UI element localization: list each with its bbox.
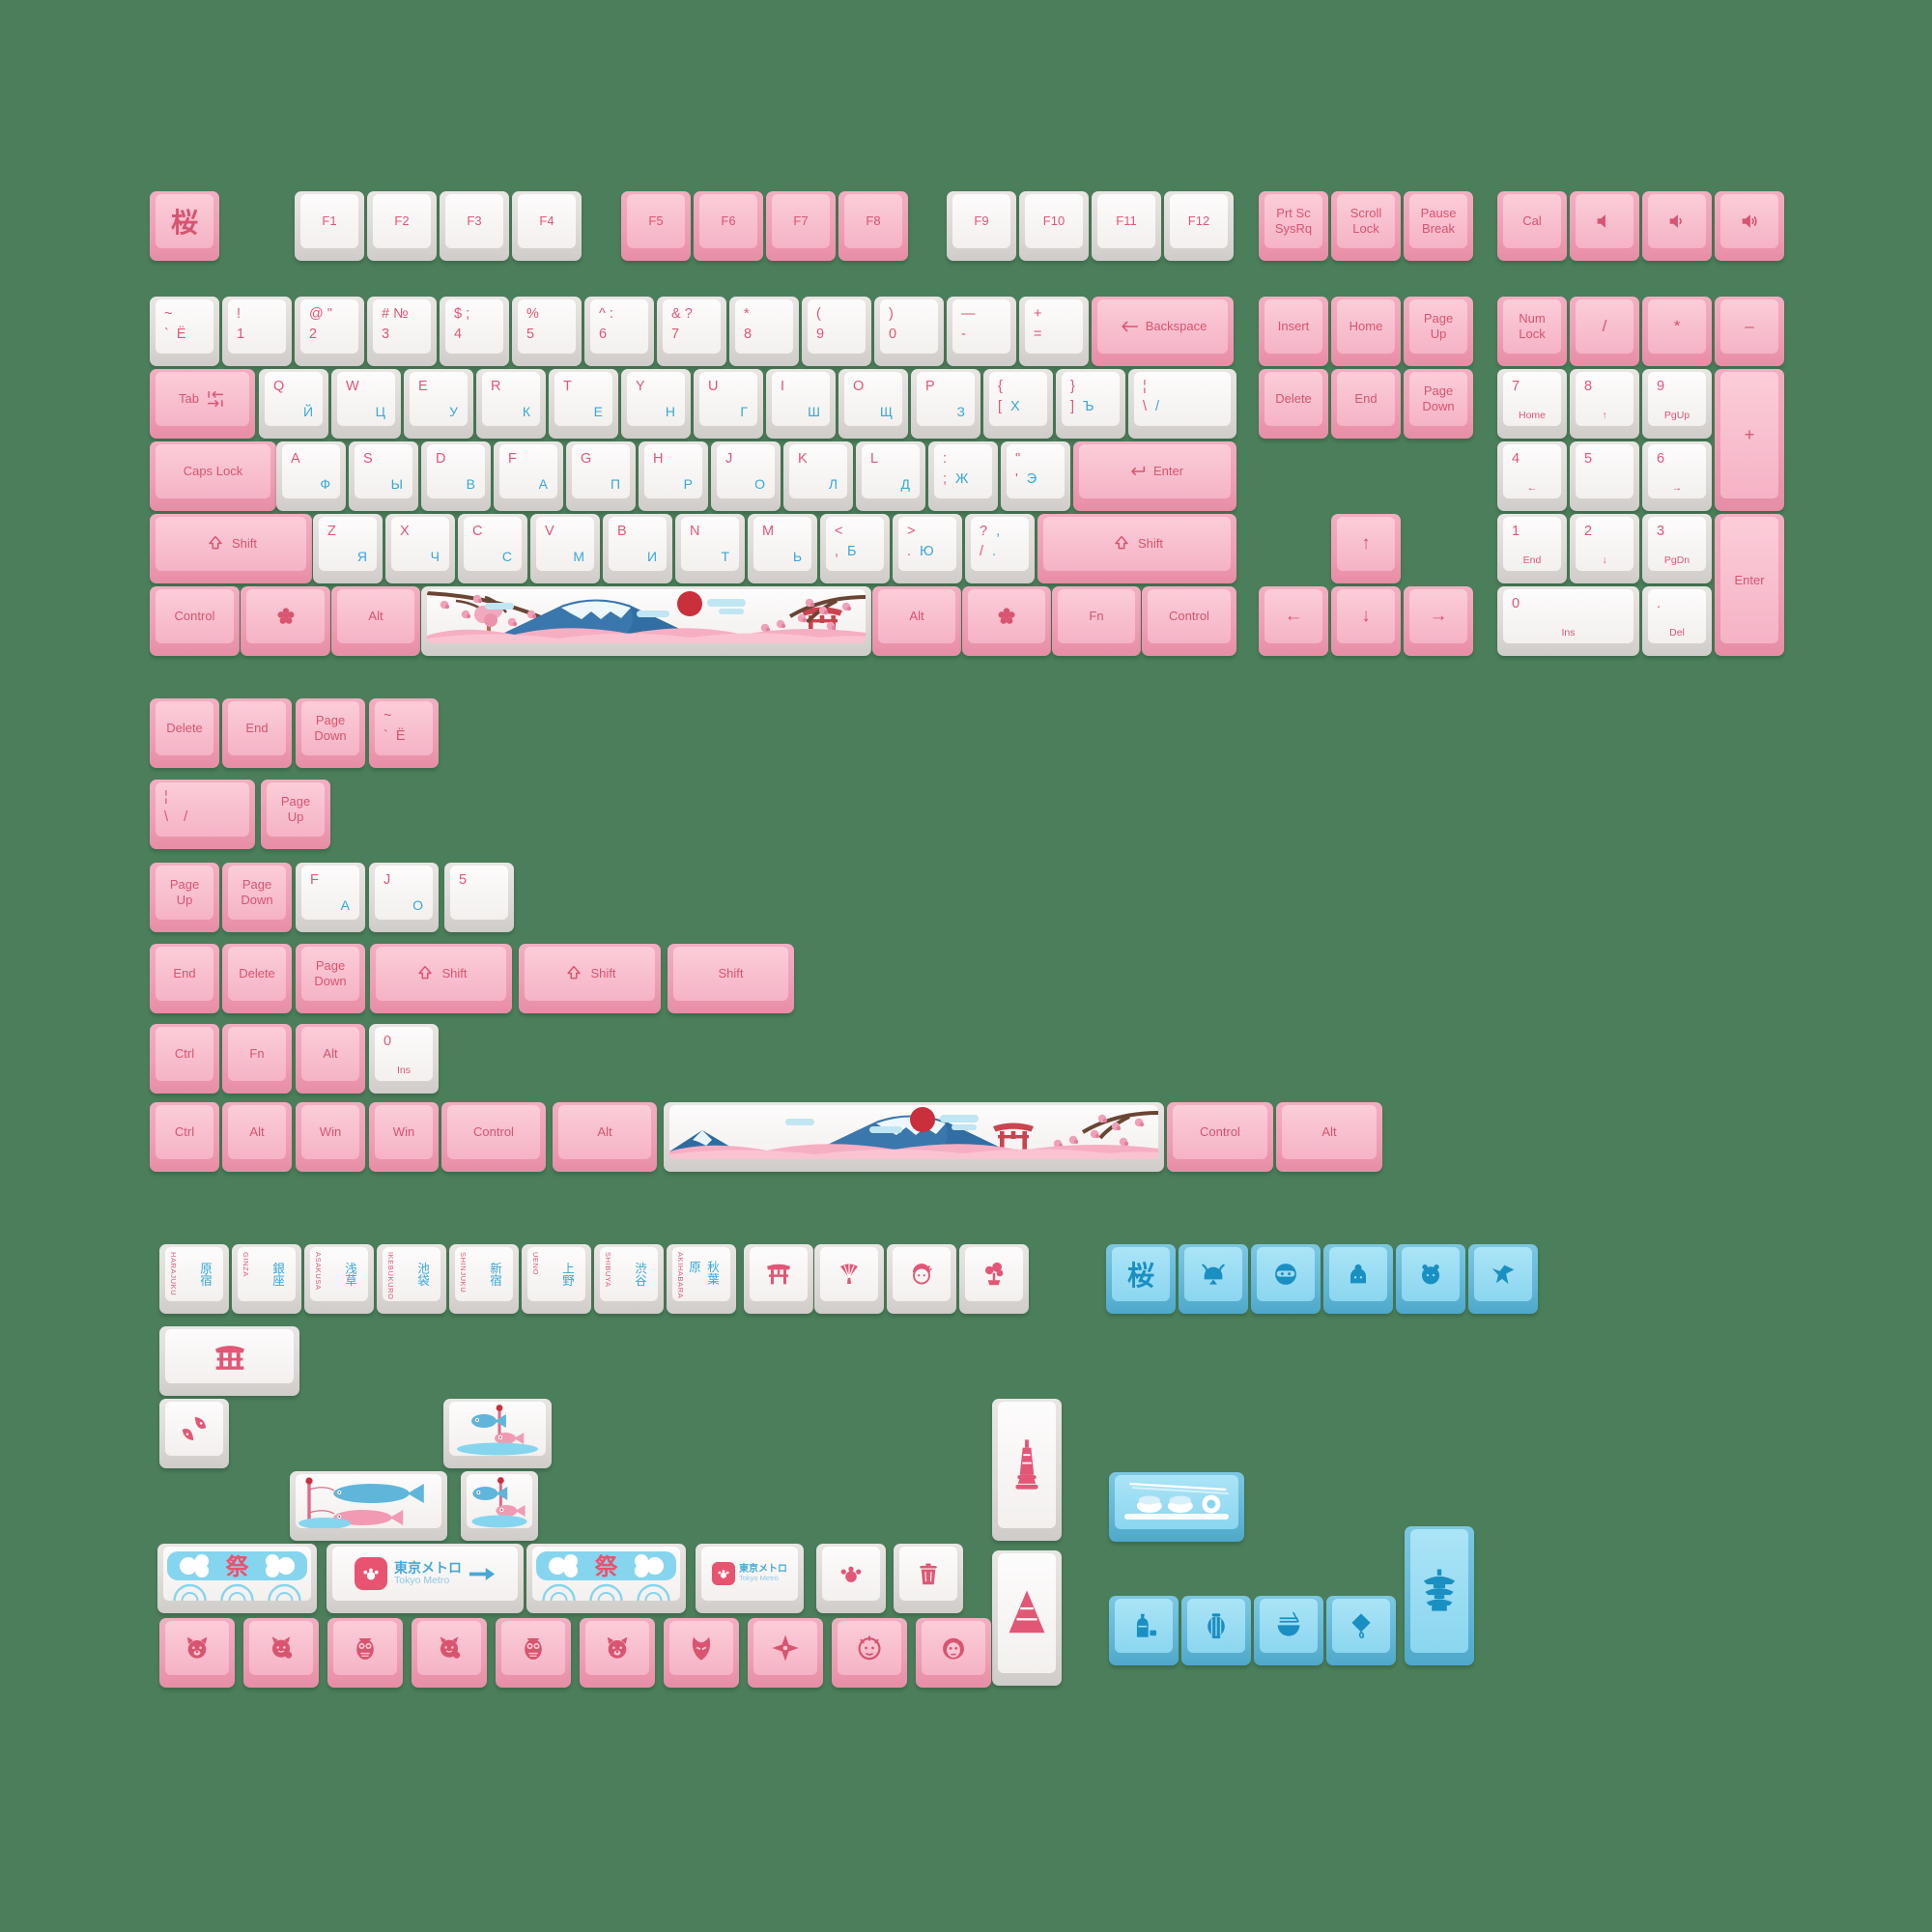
key-kite bbox=[1326, 1596, 1396, 1665]
keycap-face bbox=[1257, 1247, 1315, 1301]
key-tokyo-metro-1: 東京メトロTokyo Metro bbox=[327, 1544, 524, 1613]
key-u: UГ bbox=[694, 369, 763, 439]
keycap-face: & ?7 bbox=[663, 299, 721, 354]
key-f12: F12 bbox=[1164, 191, 1234, 261]
key-control: Control bbox=[1167, 1102, 1273, 1172]
key-quote: "'Э bbox=[1001, 441, 1070, 511]
keycap-face: OЩ bbox=[844, 372, 902, 426]
keycap-face: GП bbox=[572, 444, 630, 498]
shrine-gate-icon bbox=[211, 1337, 249, 1376]
key-maneki-neko-1 bbox=[243, 1618, 319, 1688]
backspace-icon bbox=[1119, 316, 1140, 337]
keycap-face bbox=[449, 1402, 546, 1456]
key-kokeshi-girl bbox=[887, 1244, 956, 1314]
keycap-face: Prt Sc SysRq bbox=[1264, 194, 1322, 248]
keycap-face bbox=[922, 1621, 985, 1675]
keycap-face: .Del bbox=[1648, 589, 1706, 643]
key-daruma bbox=[916, 1618, 991, 1688]
keycap-face: 8↑ bbox=[1576, 372, 1634, 426]
keycap-face bbox=[838, 1621, 901, 1675]
key-alt: Alt bbox=[222, 1102, 292, 1172]
key-f2: F2 bbox=[367, 191, 437, 261]
key-0: 0Ins bbox=[1497, 586, 1639, 656]
keycap-face: >.Ю bbox=[898, 517, 956, 571]
key-x: XЧ bbox=[385, 514, 455, 583]
key-r: RК bbox=[476, 369, 546, 439]
keycap-face: 祭 bbox=[532, 1547, 680, 1601]
keycap-face: JО bbox=[375, 866, 433, 920]
key-shift-right: Shift bbox=[1037, 514, 1236, 583]
key-page-up: Page Up bbox=[1404, 297, 1473, 366]
keycap-face bbox=[1187, 1599, 1245, 1653]
keycap-face bbox=[467, 1474, 532, 1528]
keycap-face: Shift bbox=[1043, 517, 1231, 571]
keycap-face: Page Down bbox=[228, 866, 286, 920]
keycap-face bbox=[1720, 194, 1778, 248]
key-kokeshi-doll bbox=[1396, 1244, 1465, 1314]
key-ikebukuro: IKEBUKURO池袋 bbox=[377, 1244, 446, 1314]
keycap-face: DВ bbox=[427, 444, 485, 498]
key-key: )0 bbox=[874, 297, 944, 366]
key-alt: Alt bbox=[872, 586, 961, 656]
key-numpad-subtract: – bbox=[1715, 297, 1784, 366]
keycap-face: 6→ bbox=[1648, 444, 1706, 498]
key-shift: Shift bbox=[370, 944, 512, 1013]
shift-right-icon bbox=[1111, 533, 1132, 554]
key-control: Control bbox=[150, 586, 240, 656]
keycap-face: BИ bbox=[609, 517, 667, 571]
svg-text:祭: 祭 bbox=[595, 1554, 619, 1580]
keycap-face: Ctrl bbox=[156, 1105, 213, 1159]
key-spacebar bbox=[421, 586, 871, 656]
keycap-face: Page Up bbox=[156, 866, 213, 920]
key-semicolon: :;Ж bbox=[928, 441, 998, 511]
keycap-face: ^ :6 bbox=[590, 299, 648, 354]
keycap-face: Alt bbox=[301, 1027, 359, 1081]
key-backslash-extra: ¦\ / bbox=[150, 780, 255, 849]
keycap-face: )0 bbox=[880, 299, 938, 354]
keycap-face: VМ bbox=[536, 517, 594, 571]
key-ginza: GINZA銀座 bbox=[232, 1244, 301, 1314]
key-owl-1 bbox=[327, 1618, 403, 1688]
key-o: OЩ bbox=[838, 369, 908, 439]
key-numpad-divide: / bbox=[1570, 297, 1639, 366]
key-key: %5 bbox=[512, 297, 582, 366]
key-f9: F9 bbox=[947, 191, 1016, 261]
keycap-face: F11 bbox=[1097, 194, 1155, 248]
key-w: WЦ bbox=[331, 369, 401, 439]
key-num-lock: Num Lock bbox=[1497, 297, 1567, 366]
keycap-face: }]Ъ bbox=[1062, 372, 1120, 426]
keycap-face: 5 bbox=[450, 866, 508, 920]
keycap-face bbox=[669, 1105, 1158, 1159]
pagoda-icon bbox=[1414, 1566, 1464, 1616]
key-delete: Delete bbox=[222, 944, 292, 1013]
keycap-face: F9 bbox=[952, 194, 1010, 248]
key-arrow-left: ← bbox=[1259, 586, 1328, 656]
key-koinobori-banner bbox=[290, 1471, 447, 1541]
key-k: KЛ bbox=[783, 441, 853, 511]
keycap-face: 2↓ bbox=[1576, 517, 1634, 571]
keycap-face: IKEBUKURO池袋 bbox=[383, 1247, 440, 1301]
keycap-face: * bbox=[1648, 299, 1706, 354]
key-page-down: Page Down bbox=[1404, 369, 1473, 439]
keycap-face: End bbox=[156, 947, 213, 1001]
maneki-neko-1-icon bbox=[266, 1633, 297, 1663]
key-g: GП bbox=[566, 441, 636, 511]
keycap-face: TЕ bbox=[554, 372, 612, 426]
keycap-face: —- bbox=[952, 299, 1010, 354]
volume-up-icon bbox=[1739, 211, 1760, 232]
keycap-face: Home bbox=[1337, 299, 1395, 354]
keycap-face: :;Ж bbox=[934, 444, 992, 498]
shf-icon bbox=[563, 963, 584, 984]
keycap-face: F8 bbox=[844, 194, 902, 248]
geisha-icon bbox=[1343, 1259, 1374, 1290]
key-sakura-kanji: 桜 bbox=[1106, 1244, 1176, 1314]
key-ueno: UENO上野 bbox=[522, 1244, 591, 1314]
keycap-face bbox=[427, 589, 866, 643]
kokeshi-doll-icon bbox=[1415, 1259, 1446, 1290]
keycap-face bbox=[333, 1621, 397, 1675]
keycap-face: FА bbox=[301, 866, 359, 920]
keycap-face: Alt bbox=[878, 589, 955, 643]
keycap-face: 東京メトロTokyo Metro bbox=[332, 1547, 518, 1601]
keycap-face bbox=[1260, 1599, 1318, 1653]
shiba-inu-2-icon bbox=[602, 1633, 633, 1663]
keycap-face: CС bbox=[464, 517, 522, 571]
skytree-icon bbox=[999, 1437, 1055, 1493]
keycap-face: 3PgDn bbox=[1648, 517, 1706, 571]
origami-crane-icon bbox=[1488, 1259, 1519, 1290]
keycap-face: F6 bbox=[699, 194, 757, 248]
key-koinobori-small bbox=[443, 1399, 552, 1468]
key-matsuri-festival-2: 祭 bbox=[526, 1544, 686, 1613]
key-fn: Fn bbox=[222, 1024, 292, 1094]
owl-2-icon bbox=[518, 1633, 549, 1663]
key-slash: ?,/. bbox=[965, 514, 1035, 583]
keycap-set: 桜F1F2F3F4F5F6F7F8F9F10F11F12Prt Sc SysRq… bbox=[0, 0, 1932, 1932]
keycap-face: UENO上野 bbox=[527, 1247, 585, 1301]
sakura-win-left-icon bbox=[275, 606, 297, 627]
enter-icon bbox=[1126, 461, 1148, 482]
keycap-face bbox=[669, 1621, 733, 1675]
key-page-down: Page Down bbox=[222, 863, 292, 932]
keycap-face: Shift bbox=[156, 517, 306, 571]
keycap-face: Alt bbox=[228, 1105, 286, 1159]
keycap-face: F2 bbox=[373, 194, 431, 248]
shuriken-icon bbox=[770, 1633, 801, 1663]
keycap-face bbox=[1474, 1247, 1532, 1301]
key-delete: Delete bbox=[150, 698, 219, 768]
keycap-face bbox=[998, 1553, 1056, 1673]
keycap-face: Fn bbox=[1058, 589, 1135, 643]
tokyo-tower-icon bbox=[1001, 1587, 1053, 1639]
keycap-face: Page Up bbox=[1409, 299, 1467, 354]
shift-left-icon bbox=[205, 533, 226, 554]
keycap-face: 9PgUp bbox=[1648, 372, 1706, 426]
key-f5: F5 bbox=[621, 191, 691, 261]
keycap-face: Fn bbox=[228, 1027, 286, 1081]
key-alt: Alt bbox=[553, 1102, 657, 1172]
key-f10: F10 bbox=[1019, 191, 1089, 261]
keycap-face: End bbox=[1337, 372, 1395, 426]
key-6: 6→ bbox=[1642, 441, 1712, 511]
key-samurai-helmet bbox=[1179, 1244, 1248, 1314]
keycap-face bbox=[1332, 1599, 1390, 1653]
keycap-face: Ctrl bbox=[156, 1027, 213, 1081]
keycap-face: <,Б bbox=[826, 517, 884, 571]
keycap-face bbox=[246, 589, 325, 643]
keycap-face: += bbox=[1025, 299, 1083, 354]
key-ctrl: Ctrl bbox=[150, 1024, 219, 1094]
key-v: VМ bbox=[530, 514, 600, 583]
keycap-face: %5 bbox=[518, 299, 576, 354]
keycap-face: 0Ins bbox=[375, 1027, 433, 1081]
key-tilde: ~` Ё bbox=[150, 297, 219, 366]
key-key: ^ :6 bbox=[584, 297, 654, 366]
key-skytree bbox=[992, 1399, 1062, 1541]
keycap-face bbox=[965, 1247, 1023, 1301]
key-bracket-left: {[Х bbox=[983, 369, 1053, 439]
key-harajuku: HARAJUKU原宿 bbox=[159, 1244, 229, 1314]
keycap-face: ¦\ / bbox=[156, 782, 249, 837]
key-sakura-esc: 桜 bbox=[150, 191, 219, 261]
key-geisha bbox=[1323, 1244, 1393, 1314]
keycap-face: ASAKUSA浅草 bbox=[310, 1247, 368, 1301]
key-shift: Shift bbox=[668, 944, 794, 1013]
keycap-face: Control bbox=[1173, 1105, 1267, 1159]
key-comma: <,Б bbox=[820, 514, 890, 583]
key-page-up: Page Up bbox=[150, 863, 219, 932]
keycap-face: Control bbox=[447, 1105, 540, 1159]
keycap-face: !1 bbox=[228, 299, 286, 354]
keycap-face: Win bbox=[301, 1105, 359, 1159]
key-key: !1 bbox=[222, 297, 292, 366]
keycap-face: AФ bbox=[282, 444, 340, 498]
key-f3: F3 bbox=[440, 191, 509, 261]
key-i: IШ bbox=[766, 369, 836, 439]
key-control: Control bbox=[1142, 586, 1236, 656]
keycap-face bbox=[899, 1547, 957, 1601]
key-f11: F11 bbox=[1092, 191, 1161, 261]
keycap-face: Alt bbox=[558, 1105, 651, 1159]
key-f7: F7 bbox=[766, 191, 836, 261]
key-f1: F1 bbox=[295, 191, 364, 261]
keycap-face: Page Down bbox=[301, 701, 359, 755]
key-f8: F8 bbox=[838, 191, 908, 261]
kokeshi-girl-icon bbox=[907, 1260, 936, 1289]
key-sakura-win-right bbox=[962, 586, 1051, 656]
keycap-face: F10 bbox=[1025, 194, 1083, 248]
keycap-face: F1 bbox=[300, 194, 358, 248]
keycap-face bbox=[165, 1621, 229, 1675]
kabuki-mask-icon bbox=[854, 1633, 885, 1663]
key-insert: Insert bbox=[1259, 297, 1328, 366]
key-backslash: ¦\/ bbox=[1128, 369, 1236, 439]
keycap-face bbox=[1576, 194, 1634, 248]
key-tokyo-metro-2: 東京メトロTokyo Metro bbox=[696, 1544, 804, 1613]
key-bracket-right: }]Ъ bbox=[1056, 369, 1125, 439]
key-volume-down bbox=[1642, 191, 1712, 261]
key-asakusa: ASAKUSA浅草 bbox=[304, 1244, 374, 1314]
keycap-face: Insert bbox=[1264, 299, 1322, 354]
keycap-face: + bbox=[1720, 372, 1778, 498]
bonsai-tree-icon bbox=[980, 1260, 1009, 1289]
key-owl-2 bbox=[496, 1618, 571, 1688]
keycap-face: Num Lock bbox=[1503, 299, 1561, 354]
key-key: (9 bbox=[802, 297, 871, 366]
keycap-face: SЫ bbox=[355, 444, 412, 498]
keycap-face: LД bbox=[862, 444, 920, 498]
key-origami-crane bbox=[1468, 1244, 1538, 1314]
key-scroll-lock: Scroll Lock bbox=[1331, 191, 1401, 261]
key-j: JО bbox=[711, 441, 781, 511]
keycap-face bbox=[1410, 1529, 1468, 1653]
keycap-face: $ ;4 bbox=[445, 299, 503, 354]
keycap-face: ← bbox=[1264, 589, 1322, 643]
key-homing-f: FА bbox=[296, 863, 365, 932]
key-f6: F6 bbox=[694, 191, 763, 261]
key-5: 5 bbox=[1570, 441, 1639, 511]
keycap-face: Win bbox=[375, 1105, 433, 1159]
key-paw-print bbox=[816, 1544, 886, 1613]
key-sakura-win-left bbox=[241, 586, 330, 656]
key-sake-set bbox=[1109, 1596, 1179, 1665]
key-spacebar-2 bbox=[664, 1102, 1164, 1172]
keycap-face bbox=[585, 1621, 649, 1675]
keycap-face bbox=[750, 1247, 808, 1301]
key-end: End bbox=[222, 698, 292, 768]
key-numpad-add: + bbox=[1715, 369, 1784, 511]
shf-icon bbox=[414, 963, 436, 984]
key-z: ZЯ bbox=[313, 514, 383, 583]
key-pagoda bbox=[1405, 1526, 1474, 1665]
keycap-face bbox=[417, 1621, 481, 1675]
key-9: 9PgUp bbox=[1642, 369, 1712, 439]
key-win: Win bbox=[369, 1102, 439, 1172]
keycap-face: Enter bbox=[1720, 517, 1778, 643]
key-ctrl: Ctrl bbox=[150, 1102, 219, 1172]
keycap-face: / bbox=[1576, 299, 1634, 354]
keycap-face: 1End bbox=[1503, 517, 1561, 571]
key-c: CС bbox=[458, 514, 527, 583]
keycap-face: 桜 bbox=[1112, 1247, 1170, 1301]
key-key: @ "2 bbox=[295, 297, 364, 366]
sakura-win-right-icon bbox=[996, 606, 1017, 627]
key-tokyo-tower bbox=[992, 1550, 1062, 1686]
keycap-face: KЛ bbox=[789, 444, 847, 498]
keycap-face: SHIBUYA渋谷 bbox=[600, 1247, 658, 1301]
key-key: # №3 bbox=[367, 297, 437, 366]
key-3: 3PgDn bbox=[1642, 514, 1712, 583]
keycap-face: HARAJUKU原宿 bbox=[165, 1247, 223, 1301]
key-s: SЫ bbox=[349, 441, 418, 511]
key-folding-fan bbox=[814, 1244, 884, 1314]
key-trash-can bbox=[894, 1544, 963, 1613]
keycap-face: HР bbox=[644, 444, 702, 498]
daruma-icon bbox=[938, 1633, 969, 1663]
key-shrine-gate bbox=[159, 1326, 299, 1396]
key-2: 2↓ bbox=[1570, 514, 1639, 583]
key-alt: Alt bbox=[1276, 1102, 1382, 1172]
key-y: YН bbox=[621, 369, 691, 439]
key-home: Home bbox=[1331, 297, 1401, 366]
keycap-face: AKIHABARA秋葉原 bbox=[672, 1247, 730, 1301]
key-arrow-down: ↓ bbox=[1331, 586, 1401, 656]
keycap-face: IШ bbox=[772, 372, 830, 426]
keycap-face: ↑ bbox=[1337, 517, 1395, 571]
keycap-face: ¦\/ bbox=[1134, 372, 1231, 426]
keycap-face: Delete bbox=[156, 701, 213, 755]
key-page-up: Page Up bbox=[261, 780, 330, 849]
key-sushi-board bbox=[1109, 1472, 1244, 1542]
keycap-face: WЦ bbox=[337, 372, 395, 426]
keycap-face: QЙ bbox=[265, 372, 323, 426]
key-alt: Alt bbox=[331, 586, 420, 656]
keycap-face: Page Down bbox=[1409, 372, 1467, 426]
keycap-face: Backspace bbox=[1097, 299, 1228, 354]
key-d: DВ bbox=[421, 441, 491, 511]
key-enter: Enter bbox=[1073, 441, 1236, 511]
ramen-bowl-icon bbox=[1273, 1610, 1304, 1641]
sake-set-icon bbox=[1128, 1610, 1159, 1641]
keycap-face bbox=[1402, 1247, 1460, 1301]
keycap-face: F5 bbox=[627, 194, 685, 248]
key-numpad-multiply: * bbox=[1642, 297, 1712, 366]
keycap-face bbox=[968, 589, 1045, 643]
key-a: AФ bbox=[276, 441, 346, 511]
keycap-face bbox=[753, 1621, 817, 1675]
keycap-face bbox=[1648, 194, 1706, 248]
keycap-face: UГ bbox=[699, 372, 757, 426]
key-paper-lantern bbox=[1181, 1596, 1251, 1665]
key-t: TЕ bbox=[549, 369, 618, 439]
keycap-face: @ "2 bbox=[300, 299, 358, 354]
key-shibuya: SHIBUYA渋谷 bbox=[594, 1244, 664, 1314]
keycap-face: ~` Ё bbox=[156, 299, 213, 354]
keycap-face: 5 bbox=[1576, 444, 1634, 498]
key-key: & ?7 bbox=[657, 297, 726, 366]
keycap-face: # №3 bbox=[373, 299, 431, 354]
owl-1-icon bbox=[350, 1633, 381, 1663]
keycap-face: YН bbox=[627, 372, 685, 426]
key-key: *8 bbox=[729, 297, 799, 366]
keycap-face bbox=[165, 1329, 294, 1383]
keycap-face: Enter bbox=[1079, 444, 1231, 498]
keycap-face: Shift bbox=[376, 947, 506, 1001]
kitsune-mask-icon bbox=[686, 1633, 717, 1663]
key-tab: Tab bbox=[150, 369, 255, 439]
keycap-face: Delete bbox=[1264, 372, 1322, 426]
keycap-face: End bbox=[228, 701, 286, 755]
key-1: 1End bbox=[1497, 514, 1567, 583]
keycap-face: F4 bbox=[518, 194, 576, 248]
keycap-face: Pause Break bbox=[1409, 194, 1467, 248]
tab-icon bbox=[205, 388, 226, 410]
keycap-face: ↓ bbox=[1337, 589, 1395, 643]
key-period: >.Ю bbox=[893, 514, 962, 583]
keycap-face: Control bbox=[156, 589, 234, 643]
paw-print-icon bbox=[837, 1559, 866, 1588]
keycap-face: ~` Ё bbox=[375, 701, 433, 755]
keycap-face bbox=[1329, 1247, 1387, 1301]
key-kitsune-mask bbox=[664, 1618, 739, 1688]
keycap-face: (9 bbox=[808, 299, 866, 354]
keycap-face bbox=[822, 1547, 880, 1601]
key-delete: Delete bbox=[1259, 369, 1328, 439]
keycap-face: Alt bbox=[337, 589, 414, 643]
